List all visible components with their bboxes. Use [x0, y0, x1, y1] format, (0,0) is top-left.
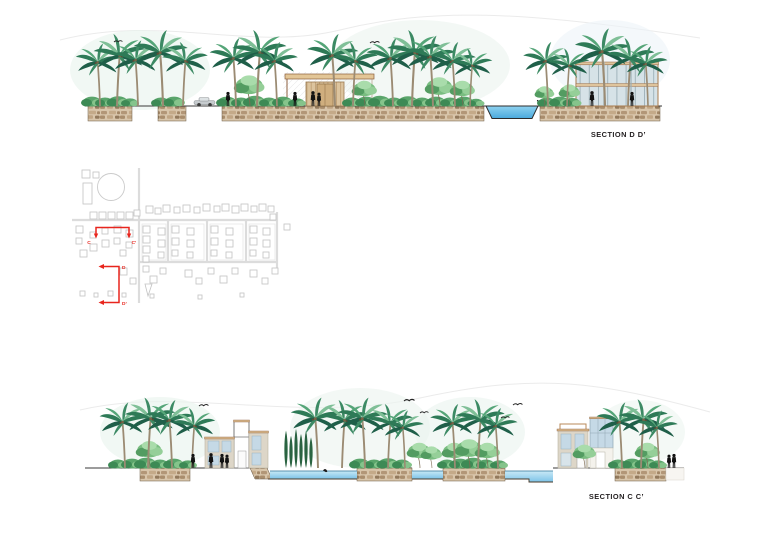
section-cc-label: SECTION C C’: [589, 492, 644, 501]
person-figure: [667, 455, 671, 468]
architectural-sections-canvas: C C’ D D’: [0, 0, 768, 543]
stone-planter-band: [88, 106, 660, 121]
window: [561, 434, 571, 449]
street-network: [72, 168, 278, 303]
section-line-d: D D’: [99, 264, 127, 307]
door: [596, 452, 605, 468]
building-footprints: [76, 170, 290, 299]
window: [252, 453, 261, 465]
bird-icon: [199, 405, 208, 406]
window: [561, 453, 571, 466]
pavilion-roof: [285, 74, 374, 79]
water-channel-c: [505, 471, 553, 482]
residential-building-b: [557, 417, 614, 468]
water-pool: [486, 101, 540, 119]
marker-c-prime-label: C’: [132, 240, 137, 246]
arrowhead: [99, 264, 105, 269]
section-dd-label: SECTION D D’: [591, 130, 646, 139]
bird-icon: [513, 404, 522, 405]
arrowhead: [99, 300, 105, 305]
window: [222, 441, 231, 452]
person-figure: [672, 454, 676, 468]
marker-d-prime-label: D’: [122, 301, 127, 307]
water-channel-b: [412, 471, 443, 479]
door: [238, 451, 246, 468]
floor-slab: [576, 84, 658, 87]
section-dd-drawing: [60, 15, 700, 121]
marker-c-label: C: [87, 240, 91, 246]
circle-landmark: [98, 174, 125, 201]
site-plan: C C’ D D’: [72, 168, 290, 307]
section-cc-drawing: [80, 383, 710, 482]
water-channel-a: [250, 468, 357, 479]
car: [194, 98, 215, 107]
drawing-sheet: C C’ D D’: [0, 0, 768, 543]
window: [252, 436, 261, 450]
marker-d-label: D: [122, 265, 126, 271]
window: [208, 441, 219, 452]
